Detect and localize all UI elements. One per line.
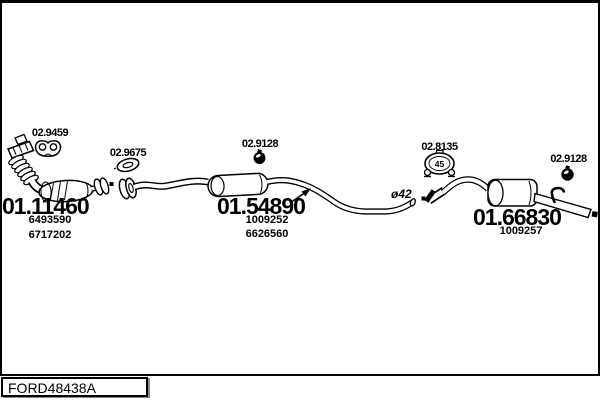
fitting-number-02-9128-middle: 02.9128 <box>239 138 281 150</box>
fitting-number-02-9128-rear: 02.9128 <box>546 153 591 165</box>
pipe-diameter-annotation: ø42 <box>391 187 412 201</box>
exhaust-diagram-page: 45 02.9459 02.9675 02.9128 02.8135 02.91… <box>0 0 600 400</box>
oem-ref: 6717202 <box>21 229 79 241</box>
joint-marker <box>110 182 114 186</box>
pipe-clamp-icon <box>561 165 573 180</box>
fitting-number-02-9459: 02.9459 <box>29 127 71 139</box>
fitting-number-02-9675: 02.9675 <box>107 147 149 159</box>
exhaust-diagram-drawing: 45 <box>2 3 600 379</box>
flange-gasket-icon <box>35 141 60 156</box>
clamp-diameter-label: 45 <box>435 159 445 169</box>
drawing-code-box: FORD48438A <box>1 377 148 397</box>
oem-ref: 6626560 <box>238 228 296 240</box>
oem-ref: 1009252 <box>238 214 296 226</box>
ring-gasket-icon <box>112 156 140 174</box>
diagram-frame: 45 02.9459 02.9675 02.9128 02.8135 02.91… <box>0 0 600 376</box>
tailpipe-end-marker <box>592 211 598 217</box>
oem-ref: 6493590 <box>21 214 79 226</box>
oem-ref: 1009257 <box>492 225 550 237</box>
mounting-clamp-icon: 45 <box>424 151 455 177</box>
pipe-clamp-icon <box>254 149 266 164</box>
fitting-number-02-8135: 02.8135 <box>417 141 462 153</box>
drawing-code: FORD48438A <box>8 380 96 396</box>
